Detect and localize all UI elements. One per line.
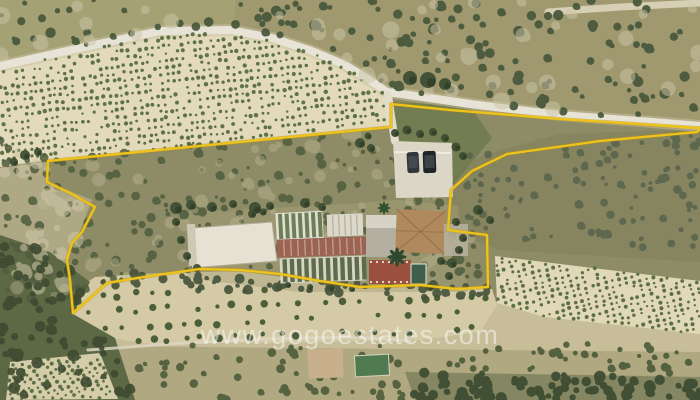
palm-tree: [387, 247, 406, 266]
building-pool: [411, 264, 426, 284]
car-1: [406, 152, 419, 174]
aerial-photo: [0, 0, 700, 400]
building-pens-north: [275, 211, 323, 240]
building-farmhouse-terracotta: [395, 209, 445, 254]
building-pens-south: [280, 255, 367, 283]
building-white-arc-roof: [327, 213, 364, 236]
building-shed-tan-roof: [308, 348, 344, 378]
parking-area: [393, 141, 453, 198]
aerial-photo-container: www.gogoestates.com: [0, 0, 700, 400]
building-shed-green-roof: [354, 354, 389, 377]
building-barn-red-roof: [277, 236, 368, 257]
building-red-terrace: [369, 260, 411, 284]
building-gray-building-top: [366, 215, 399, 228]
palm-tree: [378, 202, 391, 215]
building-courtyard: [192, 222, 277, 268]
car-2: [423, 151, 437, 173]
parking-lot: [393, 141, 453, 198]
parking-wall: [394, 152, 451, 153]
